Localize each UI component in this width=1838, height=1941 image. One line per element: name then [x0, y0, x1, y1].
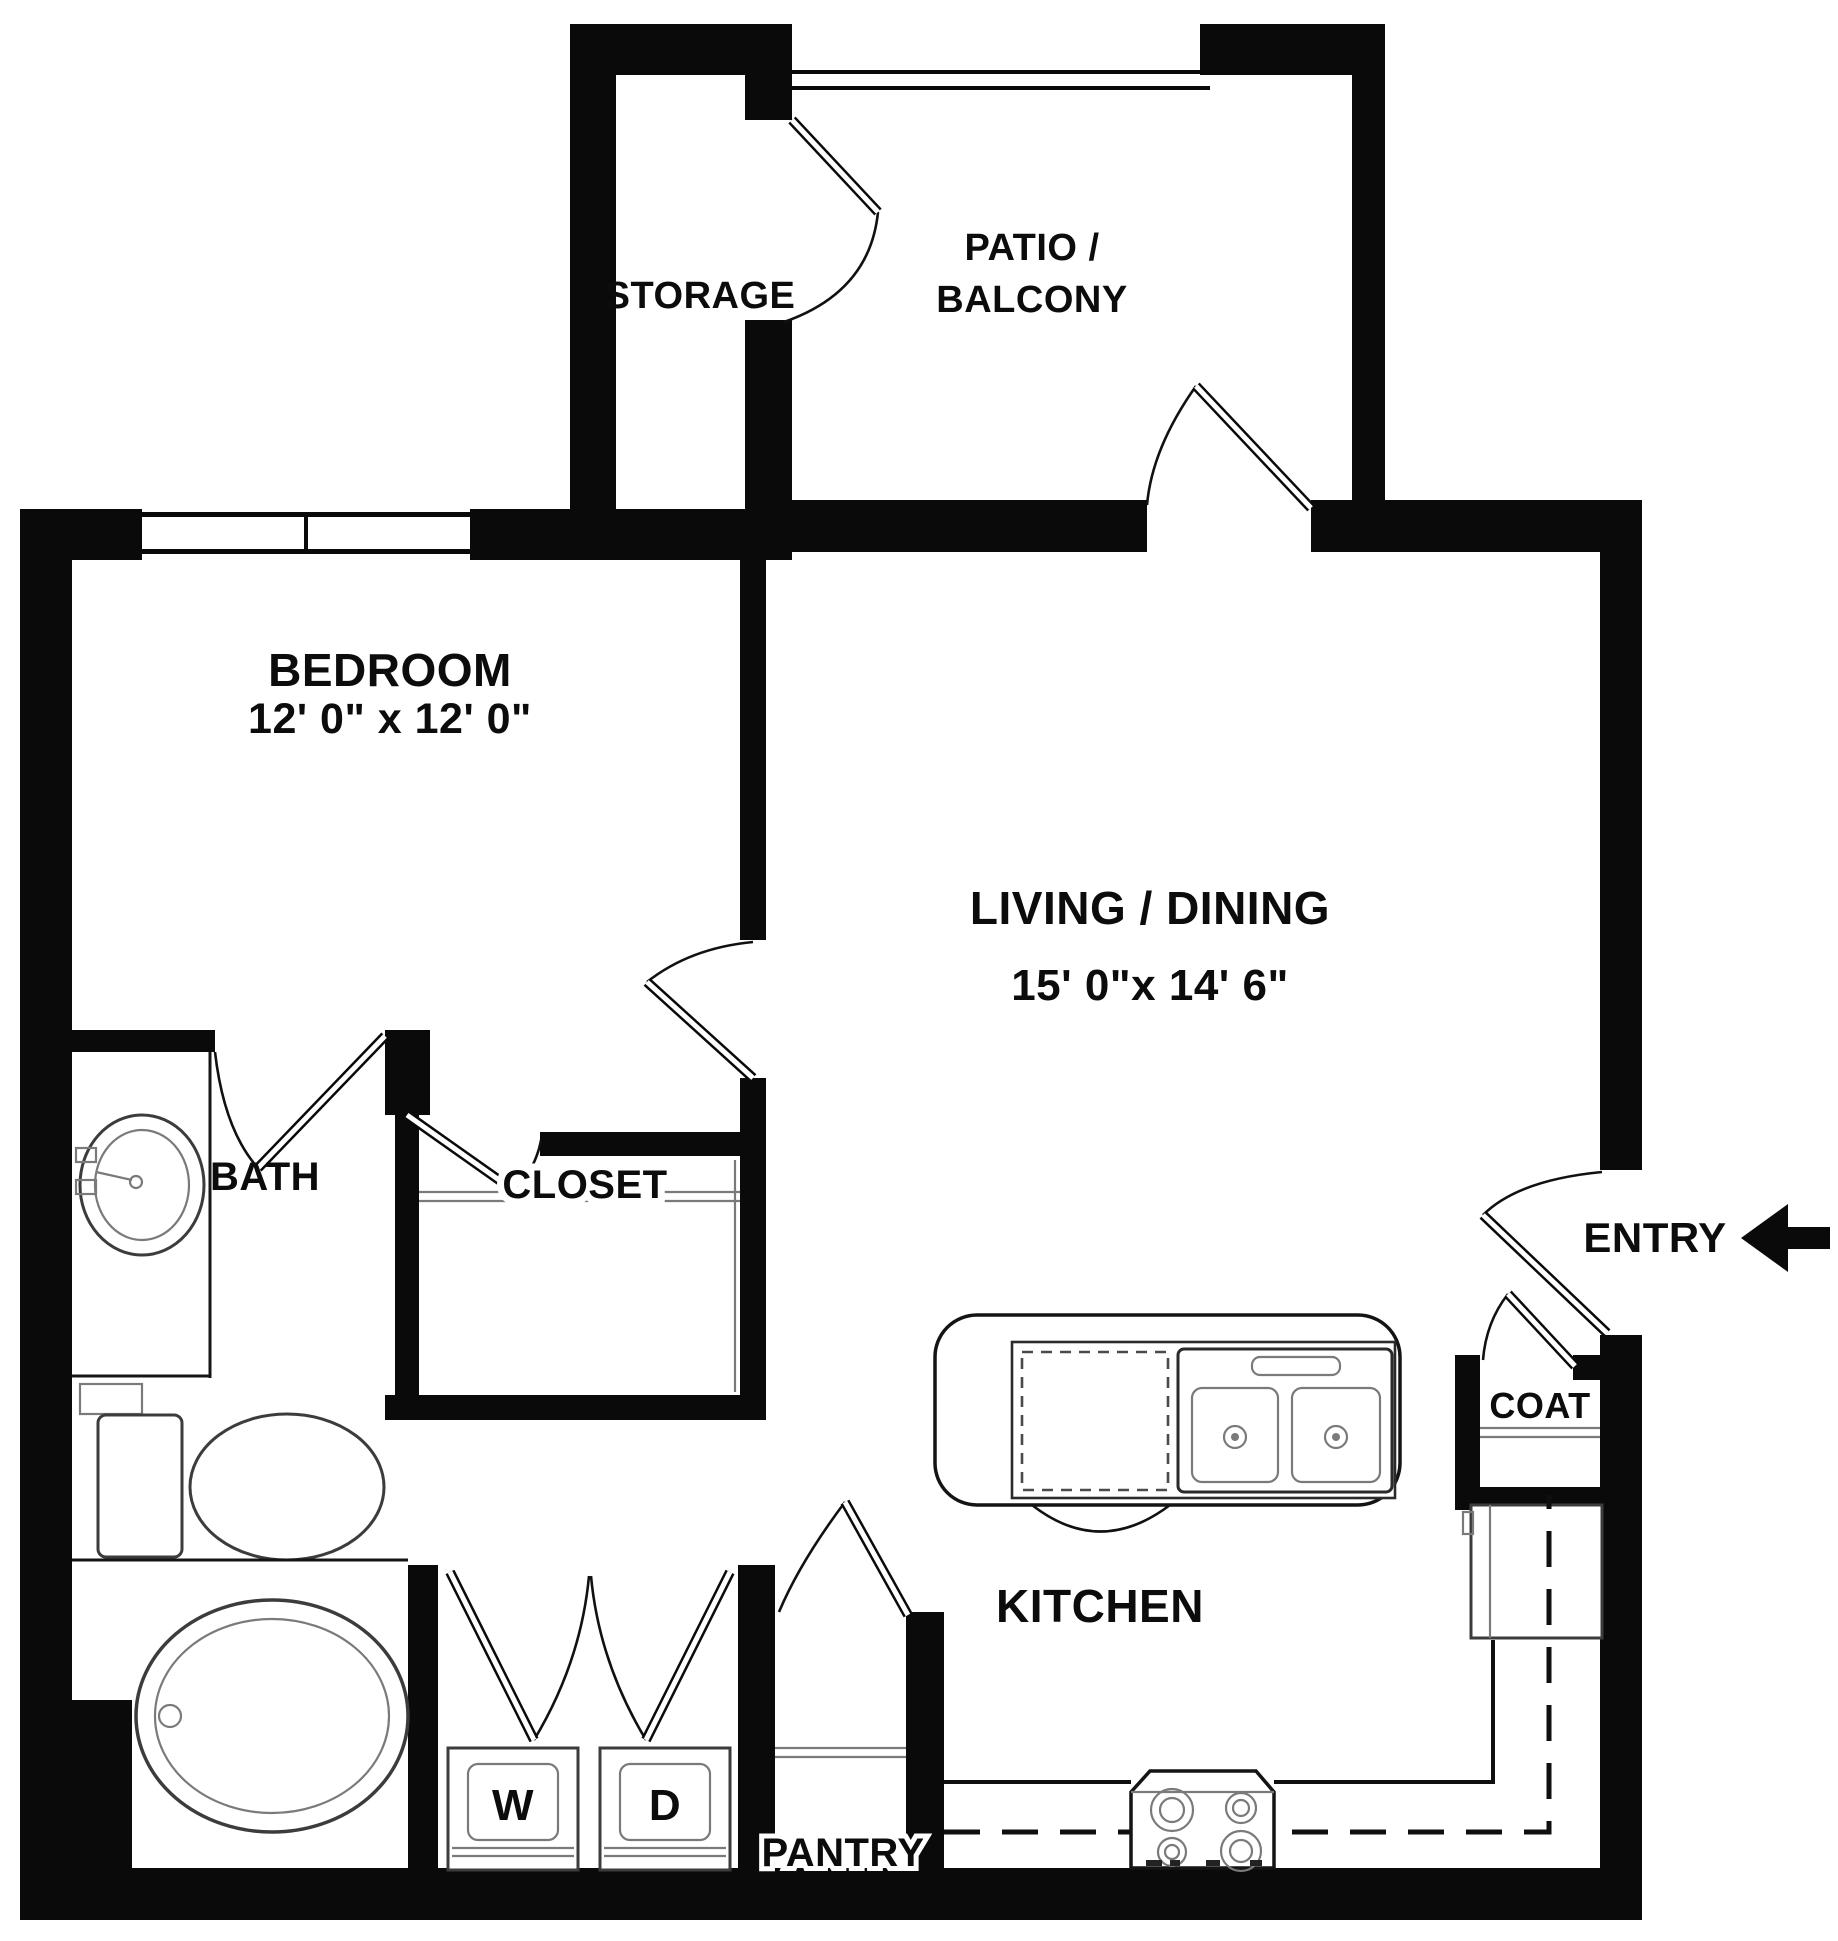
entry-label: ENTRY: [1583, 1214, 1726, 1261]
patio-railing-inner: [772, 86, 1210, 90]
bathtub: [136, 1600, 408, 1832]
kitchen-label: KITCHEN: [996, 1580, 1204, 1632]
bedroom-window-cap-right: [470, 509, 482, 560]
stove-control2: [1170, 1860, 1180, 1866]
storage-door: [784, 120, 878, 322]
bedroom-label: BEDROOM: [268, 644, 512, 696]
stove-control1: [1146, 1860, 1162, 1866]
bedroom-dimensions: 12' 0" x 12' 0": [248, 695, 532, 743]
wall-coat-left: [1455, 1355, 1480, 1510]
stove-control3: [1206, 1860, 1220, 1866]
wall-closet-bottom: [385, 1395, 766, 1420]
bath-door: [215, 1036, 385, 1168]
coat-door: [1483, 1294, 1575, 1366]
floor-plan-canvas: STORAGE PATIO / BALCONY BEDROOM 12' 0" x…: [0, 0, 1838, 1941]
wall-closet-top: [540, 1132, 766, 1156]
island-sink: [1178, 1349, 1392, 1492]
bedroom-window-mullion: [304, 512, 308, 554]
living-dining-label: LIVING / DINING: [970, 882, 1330, 934]
bath-label: BATH: [210, 1155, 320, 1199]
towel-bar: [80, 1384, 142, 1414]
wall-bedroom-top-left: [20, 509, 138, 560]
pantry-label: PANTRY: [762, 1831, 925, 1875]
pantry-door: [779, 1502, 908, 1615]
living-dining-dimensions: 15' 0"x 14' 6": [1011, 961, 1289, 1010]
wall-closet-left: [395, 1115, 419, 1400]
wall-bath-divider: [72, 1030, 215, 1052]
patio-label-line2: BALCONY: [936, 279, 1127, 321]
bedroom-window-cap-left: [130, 509, 142, 560]
wall-tub-divider: [408, 1565, 438, 1868]
wall-corner-block-bottom-left: [20, 1700, 132, 1870]
counter-edge-right: [1274, 1640, 1493, 1782]
bedroom-door: [647, 942, 753, 1078]
wall-bedroom-living-upper: [740, 560, 766, 940]
wall-bedroom-top-right: [478, 509, 772, 560]
entry-arrow-icon: [1741, 1204, 1830, 1272]
wall-closet-right: [740, 1078, 766, 1400]
wall-right-upper: [1600, 530, 1642, 1170]
wall-pantry-left: [738, 1565, 775, 1868]
stove-control4: [1250, 1860, 1262, 1866]
laundry-fixtures: [448, 1748, 730, 1870]
patio-label-line1: PATIO /: [964, 227, 1099, 269]
washer-label: W: [492, 1781, 534, 1830]
dishwasher-door-arc: [1032, 1505, 1170, 1532]
storage-label: STORAGE: [605, 275, 796, 317]
washer-dryer-doors: [450, 1572, 730, 1740]
wall-pantry-right: [906, 1612, 944, 1868]
wall-patio-living-left: [745, 500, 1147, 552]
wall-patio-living-right: [1311, 500, 1642, 552]
doors: [215, 120, 1607, 1740]
wall-patio-right: [1352, 24, 1385, 530]
wall-bath-door-stub: [385, 1030, 430, 1115]
patio-railing-outer: [772, 70, 1210, 74]
wall-outer-bottom: [20, 1868, 1642, 1920]
coat-label: COAT: [1489, 1385, 1590, 1426]
toilet-bowl: [190, 1414, 384, 1560]
wall-coat-top-stub: [1573, 1355, 1600, 1380]
dryer-label: D: [649, 1781, 681, 1830]
closet-label: CLOSET: [502, 1163, 667, 1207]
stove: [1131, 1771, 1274, 1871]
patio-door: [1147, 386, 1311, 508]
wall-right-lower: [1600, 1335, 1642, 1868]
toilet-tank: [98, 1415, 182, 1557]
floor-plan: STORAGE PATIO / BALCONY BEDROOM 12' 0" x…: [0, 0, 1838, 1941]
kitchen-island: [935, 1315, 1400, 1532]
